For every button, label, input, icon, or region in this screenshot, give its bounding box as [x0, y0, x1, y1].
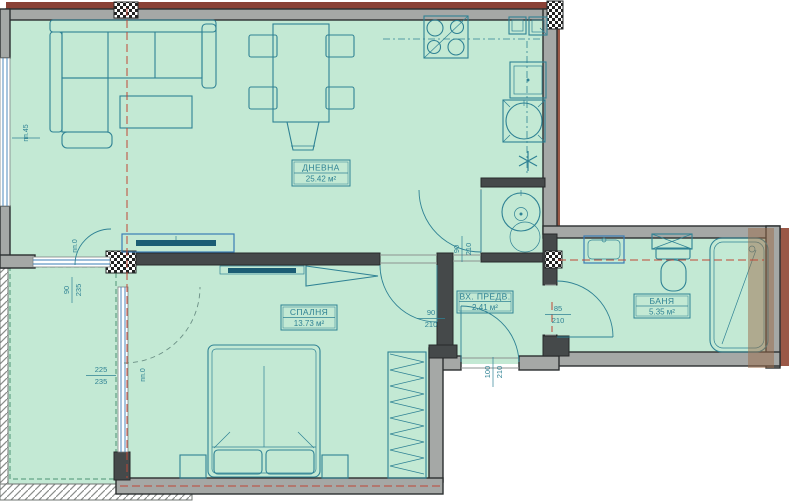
wall-closet-bottom — [481, 253, 545, 262]
column-center-left — [106, 251, 136, 273]
wall-closet-top — [481, 178, 545, 187]
bath-facade-accent — [780, 228, 789, 366]
svg-text:пп.0: пп.0 — [72, 239, 79, 253]
wall-bath-bottom — [553, 352, 780, 366]
room-name: БАНЯ — [650, 296, 675, 306]
wall-hall-left — [437, 253, 453, 356]
wall-living-bedroom — [116, 253, 380, 265]
svg-text:210: 210 — [464, 243, 473, 256]
svg-text:210: 210 — [495, 366, 504, 379]
room-area: 5.35 м² — [649, 308, 675, 317]
wall-bath-corner-block — [543, 336, 569, 356]
svg-text:225: 225 — [95, 365, 108, 374]
wall-bedroom-right — [429, 348, 443, 482]
wall-bath-top — [543, 226, 780, 238]
column-top-right — [547, 1, 563, 29]
room-area: 25.42 м² — [306, 175, 337, 184]
svg-text:235: 235 — [95, 377, 108, 386]
wall-hall-bottom-right — [519, 356, 559, 370]
wall-left-upper — [0, 9, 10, 58]
room-name: СПАЛНЯ — [290, 307, 328, 317]
room-name: ВХ. ПРЕДВ. — [460, 292, 511, 302]
column-top — [114, 2, 138, 18]
floor-plan-page: ДНЕВНА 25.42 м² СПАЛНЯ 13.73 м² ВХ. ПРЕД… — [0, 0, 789, 501]
svg-text:90: 90 — [452, 245, 461, 253]
floor-plan-drawing: ДНЕВНА 25.42 м² СПАЛНЯ 13.73 м² ВХ. ПРЕД… — [0, 0, 789, 501]
floor-bathroom — [553, 234, 772, 356]
dim-parapet-living: пп.0 — [72, 239, 79, 253]
room-area: 13.73 м² — [294, 319, 325, 328]
top-facade-accent — [6, 2, 547, 9]
svg-text:пп.0: пп.0 — [140, 368, 147, 382]
svg-text:90: 90 — [62, 286, 71, 294]
dim-parapet-left: пп.45 — [23, 124, 30, 141]
window-living-balcony — [33, 257, 110, 267]
window-living-left — [0, 58, 10, 206]
svg-text:235: 235 — [74, 284, 83, 297]
svg-text:85: 85 — [554, 304, 562, 313]
svg-text:пп.45: пп.45 — [23, 124, 30, 141]
wall-bedroom-window-stub — [114, 452, 130, 480]
svg-text:210: 210 — [552, 316, 565, 325]
svg-text:100: 100 — [483, 366, 492, 379]
floor-bedroom — [122, 258, 443, 482]
bath-exterior-overlay — [748, 228, 774, 368]
svg-text:90: 90 — [427, 308, 435, 317]
room-name: ДНЕВНА — [302, 163, 339, 173]
wall-hall-step — [429, 345, 457, 358]
balcony-wall-left — [0, 266, 8, 486]
room-area: 2.41 м² — [472, 303, 498, 312]
wall-balcony-top-left — [0, 255, 35, 268]
dim-parapet-bedroom: пп.0 — [140, 368, 147, 382]
svg-text:210: 210 — [425, 320, 438, 329]
